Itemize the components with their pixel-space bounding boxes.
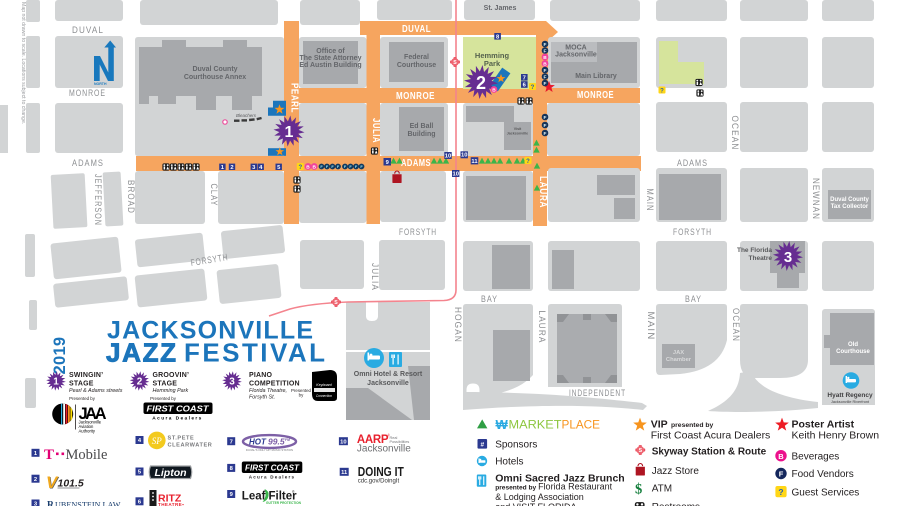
svg-text:& Lodging Association: & Lodging Association (495, 492, 584, 502)
svg-text:Courthouse: Courthouse (397, 62, 436, 69)
svg-text:NORTH: NORTH (94, 82, 107, 86)
svg-text:Jazz Store: Jazz Store (652, 466, 700, 477)
svg-text:Presented by: Presented by (150, 396, 177, 401)
svg-text:Park: Park (484, 59, 501, 68)
svg-text:Tax Collector: Tax Collector (831, 204, 869, 210)
svg-text:GROOVIN’: GROOVIN’ (153, 372, 190, 379)
svg-text:Hotels: Hotels (495, 457, 523, 468)
svg-text:DUVAL: DUVAL (402, 24, 431, 35)
svg-text:MAIN: MAIN (644, 189, 655, 212)
svg-text:7: 7 (230, 439, 233, 445)
svg-text:Beverages: Beverages (792, 451, 840, 462)
svg-text:HOGAN: HOGAN (452, 307, 463, 343)
svg-text:1: 1 (285, 124, 294, 141)
svg-text:JULIA: JULIA (370, 118, 381, 143)
svg-text:UBENSTEIN LAW: UBENSTEIN LAW (55, 501, 121, 506)
svg-text:FM: FM (285, 438, 290, 442)
svg-text:BAY: BAY (481, 294, 498, 305)
svg-text:Main Library: Main Library (575, 73, 617, 80)
svg-text:DUVAL: DUVAL (72, 25, 104, 36)
svg-text:10: 10 (461, 153, 467, 159)
svg-text:OCEAN: OCEAN (729, 116, 740, 151)
svg-text:COMPETITION: COMPETITION (249, 381, 300, 388)
svg-text:HOT: HOT (249, 438, 267, 447)
svg-text:The Florida: The Florida (737, 247, 772, 254)
svg-text:$: $ (635, 482, 642, 498)
svg-text:Food Vendors: Food Vendors (792, 469, 854, 480)
svg-text:Office of: Office of (316, 48, 345, 55)
svg-text:®: ® (292, 490, 295, 494)
svg-text:STAGE: STAGE (69, 381, 94, 388)
svg-text:MARKETPLACE: MARKETPLACE (509, 420, 601, 432)
svg-text:10: 10 (452, 171, 458, 177)
svg-text:BAY: BAY (685, 294, 702, 305)
svg-text:LAURA: LAURA (537, 176, 548, 208)
svg-text:?: ? (778, 487, 783, 497)
svg-text:Restrooms: Restrooms (652, 502, 700, 506)
svg-text:Forsyth St.: Forsyth St. (249, 395, 275, 401)
svg-text:T: T (44, 447, 54, 463)
svg-text:NEWNAN: NEWNAN (810, 178, 821, 220)
svg-text:7: 7 (523, 75, 526, 81)
svg-text:SWINGIN’: SWINGIN’ (69, 372, 103, 379)
svg-text:Florida Theatre,: Florida Theatre, (249, 388, 287, 394)
svg-text:CLAY: CLAY (208, 184, 219, 207)
svg-text:1: 1 (53, 377, 59, 388)
svg-text:2: 2 (137, 377, 143, 388)
svg-text:99.5: 99.5 (268, 437, 285, 447)
svg-text:Duval County: Duval County (830, 197, 869, 203)
svg-text:11: 11 (341, 470, 348, 476)
svg-text:Ed Ball: Ed Ball (410, 123, 434, 130)
svg-text:STAGE: STAGE (153, 381, 178, 388)
svg-text:3: 3 (229, 377, 235, 388)
svg-text:JEFFERSON: JEFFERSON (92, 174, 103, 226)
svg-text:ATM: ATM (652, 484, 672, 495)
svg-text:Map not drawn to scale. Locati: Map not drawn to scale. Locations subjec… (20, 2, 26, 124)
svg-text:CLEARWATER: CLEARWATER (168, 443, 213, 449)
svg-text:11: 11 (471, 159, 478, 165)
svg-text:2: 2 (230, 165, 233, 171)
svg-text:ST.PETE: ST.PETE (168, 436, 195, 442)
svg-text:Visit: Visit (514, 127, 522, 131)
svg-text:Lipton: Lipton (154, 467, 186, 479)
svg-text:Duval County: Duval County (192, 66, 237, 73)
svg-text:Hyatt Regency: Hyatt Regency (827, 392, 873, 399)
svg-text:Jacksonville: Jacksonville (507, 132, 528, 136)
svg-text:Acura Dealers: Acura Dealers (152, 416, 202, 422)
svg-text:F: F (779, 470, 784, 479)
svg-text:presented by: presented by (671, 422, 714, 429)
svg-text:Authority: Authority (79, 429, 96, 434)
svg-text:B: B (778, 452, 784, 461)
svg-text:Chamber: Chamber (666, 357, 692, 363)
svg-text:MONROE: MONROE (69, 88, 106, 99)
svg-text:Sponsors: Sponsors (495, 440, 537, 451)
svg-text:LAURA: LAURA (536, 311, 547, 344)
svg-text:cdc.gov/DoingIt: cdc.gov/DoingIt (358, 479, 400, 485)
svg-text:10: 10 (445, 153, 451, 159)
svg-text:Jacksonville: Jacksonville (367, 380, 409, 387)
svg-text:PIANO: PIANO (249, 372, 273, 379)
svg-text:ADAMS: ADAMS (72, 158, 104, 169)
svg-text:FORSYTH: FORSYTH (673, 227, 712, 238)
svg-text:by: by (299, 393, 304, 398)
svg-text:FIRST COAST: FIRST COAST (245, 463, 300, 473)
svg-text:JAX: JAX (673, 350, 684, 356)
svg-text:Jacksonville Riverfront: Jacksonville Riverfront (831, 400, 870, 404)
svg-text:MONROE: MONROE (396, 91, 435, 102)
svg-text:THEATRE▪: THEATRE▪ (158, 502, 184, 506)
svg-text:Old: Old (848, 342, 858, 348)
svg-text:Hemming Park: Hemming Park (153, 388, 189, 394)
svg-text:Pearl & Adams streets: Pearl & Adams streets (69, 388, 123, 394)
svg-text:Acura Dealers: Acura Dealers (249, 475, 296, 480)
svg-text:Mobile: Mobile (66, 447, 108, 463)
svg-text:Guest Services: Guest Services (792, 487, 860, 498)
svg-text:Connection: Connection (316, 394, 332, 398)
svg-text:MOCA: MOCA (565, 45, 586, 52)
svg-text:Bleachers: Bleachers (236, 113, 257, 118)
svg-text:PEARL: PEARL (289, 83, 300, 113)
svg-text:and VISIT FLORIDA: and VISIT FLORIDA (495, 502, 576, 506)
svg-text:SP: SP (152, 436, 163, 446)
svg-text:MAIN: MAIN (645, 312, 656, 341)
svg-text:Leaf: Leaf (242, 491, 266, 503)
svg-text:3: 3 (784, 249, 792, 266)
svg-text:The State Attorney: The State Attorney (300, 55, 362, 62)
svg-text:₩: ₩ (496, 417, 509, 432)
svg-text:Ed Austin Building: Ed Austin Building (299, 62, 361, 69)
svg-text:Jacksonville: Jacksonville (357, 444, 411, 455)
svg-text:R: R (47, 501, 54, 506)
svg-text:GUTTER PROTECTION: GUTTER PROTECTION (266, 501, 302, 505)
svg-text:First Coast Acura Dealers: First Coast Acura Dealers (651, 430, 771, 442)
svg-text:FESTIVAL: FESTIVAL (184, 338, 325, 368)
svg-text:Theatre: Theatre (749, 255, 773, 262)
svg-text:FORSYTH: FORSYTH (399, 227, 437, 238)
svg-text:10: 10 (340, 439, 346, 445)
svg-text:JULIA: JULIA (369, 263, 380, 291)
svg-text:Keyboard: Keyboard (316, 383, 332, 387)
svg-text:Building: Building (408, 131, 436, 138)
svg-text:Presented by: Presented by (69, 396, 96, 401)
svg-text:DUVAL'S ONLY HIT MUSIC STATION: DUVAL'S ONLY HIT MUSIC STATION (246, 448, 293, 452)
svg-text:2: 2 (476, 73, 486, 93)
svg-text:2: 2 (34, 477, 37, 483)
svg-text:Keith Henry Brown: Keith Henry Brown (792, 430, 880, 442)
svg-text:Jacksonville: Jacksonville (555, 52, 597, 59)
svg-text:Skyway Station & Route: Skyway Station & Route (652, 447, 767, 458)
svg-text:BROAD: BROAD (125, 180, 136, 214)
svg-text:DOING IT: DOING IT (358, 464, 404, 479)
svg-text:FIRST COAST: FIRST COAST (147, 404, 210, 414)
svg-text:MONROE: MONROE (577, 90, 614, 101)
svg-text:Courthouse: Courthouse (836, 349, 870, 355)
svg-text:#: # (480, 441, 484, 448)
svg-text:St. James: St. James (484, 5, 517, 12)
svg-text:Omni Hotel & Resort: Omni Hotel & Resort (354, 371, 423, 378)
svg-text:Courthouse Annex: Courthouse Annex (184, 74, 246, 81)
svg-text:Federal: Federal (404, 54, 429, 61)
svg-text:ADAMS: ADAMS (401, 158, 431, 169)
svg-text:ADAMS: ADAMS (677, 158, 708, 169)
svg-text:OCEAN: OCEAN (730, 308, 741, 342)
svg-text:2019: 2019 (51, 337, 69, 375)
